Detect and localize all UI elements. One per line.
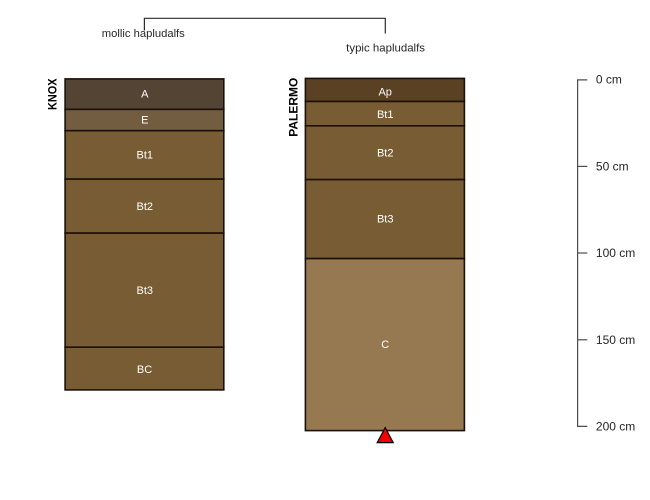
svg-text:mollic hapludalfs: mollic hapludalfs	[102, 28, 185, 40]
svg-text:0 cm: 0 cm	[596, 73, 622, 87]
svg-text:Bt3: Bt3	[377, 214, 394, 226]
svg-text:50 cm: 50 cm	[596, 159, 629, 173]
svg-text:Bt2: Bt2	[377, 147, 394, 159]
svg-text:BC: BC	[137, 364, 152, 376]
svg-text:A: A	[141, 88, 149, 100]
svg-text:200 cm: 200 cm	[596, 420, 635, 434]
svg-text:Bt1: Bt1	[137, 150, 154, 162]
svg-text:Bt1: Bt1	[377, 109, 394, 121]
svg-text:Ap: Ap	[378, 86, 391, 98]
svg-text:150 cm: 150 cm	[596, 333, 635, 347]
svg-text:C: C	[381, 339, 389, 351]
svg-text:Bt3: Bt3	[137, 285, 154, 297]
svg-text:typic hapludalfs: typic hapludalfs	[346, 43, 425, 55]
svg-text:E: E	[141, 115, 148, 127]
svg-text:Bt2: Bt2	[137, 201, 154, 213]
svg-text:PALERMO: PALERMO	[289, 78, 301, 137]
svg-text:KNOX: KNOX	[47, 78, 59, 110]
svg-text:100 cm: 100 cm	[596, 246, 635, 260]
